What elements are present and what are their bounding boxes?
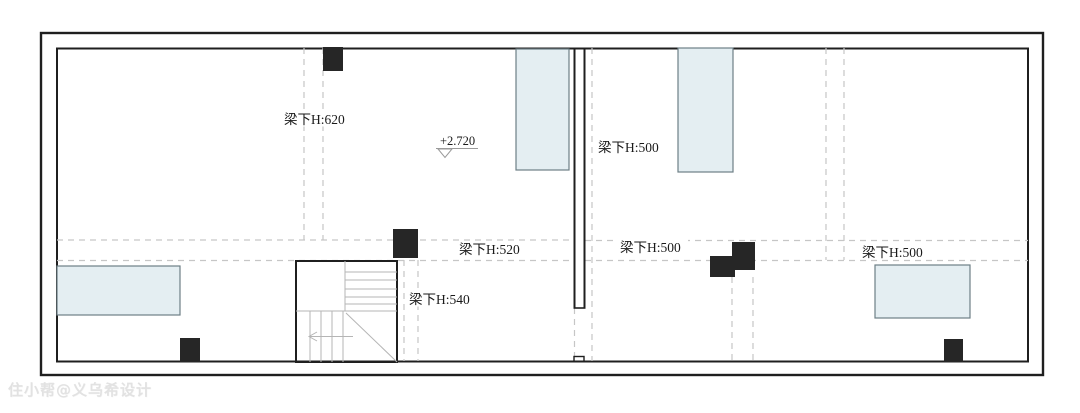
- stair-direction-arrow: [309, 332, 353, 341]
- center-wall: [574, 48, 586, 362]
- beam-label-500-mid: 梁下H:500: [620, 240, 681, 255]
- elevation-marker: +2.720: [434, 132, 482, 159]
- stair-treads: [296, 261, 397, 362]
- elevation-value: +2.720: [440, 134, 475, 148]
- column-stair: [393, 229, 418, 258]
- floor-plan-canvas: +2.720 梁下H:620 梁下H:500 梁下H:520 梁下H:500 梁…: [0, 0, 1080, 413]
- column-l-shape-upper: [732, 242, 755, 270]
- columns: [180, 47, 963, 362]
- staircase: [296, 261, 397, 362]
- column-l-shape-lower: [710, 256, 735, 277]
- column-top-left: [323, 47, 343, 71]
- column-bottom-right: [944, 339, 963, 362]
- floor-plan-drawing: +2.720 梁下H:620 梁下H:500 梁下H:520 梁下H:500 梁…: [0, 0, 1080, 413]
- beam-label-500-right: 梁下H:500: [862, 245, 923, 260]
- watermark: 住小帮@义乌希设计: [8, 379, 152, 400]
- panel-bottom-right: [875, 265, 970, 318]
- panel-top-right: [678, 48, 733, 172]
- column-bottom-left: [180, 338, 200, 362]
- beam-label-500-center: 梁下H:500: [598, 140, 659, 155]
- stair-break-diagonal: [346, 313, 397, 362]
- panels: [57, 48, 970, 318]
- panel-top-left: [516, 49, 569, 170]
- beam-height-labels: 梁下H:620 梁下H:500 梁下H:520 梁下H:500 梁下H:500 …: [281, 112, 930, 308]
- beam-label-540: 梁下H:540: [409, 292, 470, 307]
- beam-label-520: 梁下H:520: [459, 242, 520, 257]
- panel-bottom-left: [57, 266, 180, 315]
- beam-label-620: 梁下H:620: [284, 112, 345, 127]
